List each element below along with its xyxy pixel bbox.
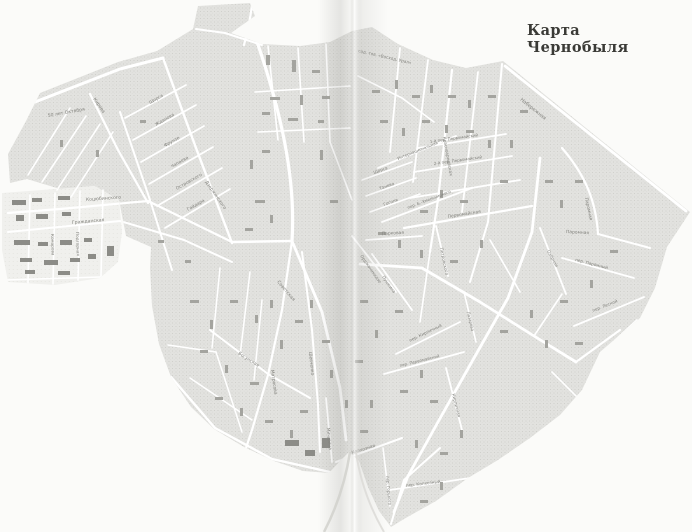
street-label: Комарова (50, 234, 56, 256)
map-title: Карта Чернобыля (527, 22, 687, 56)
street-label: Подгорная (75, 232, 81, 256)
street-label: Паромная (566, 229, 590, 236)
scanned-book-page: 50 лет ОктябряКироваДзержинскогоЩорсаЖда… (0, 0, 692, 532)
page-fold-shadow (318, 0, 388, 532)
chernobyl-map: 50 лет ОктябряКироваДзержинскогоЩорсаЖда… (0, 0, 692, 532)
